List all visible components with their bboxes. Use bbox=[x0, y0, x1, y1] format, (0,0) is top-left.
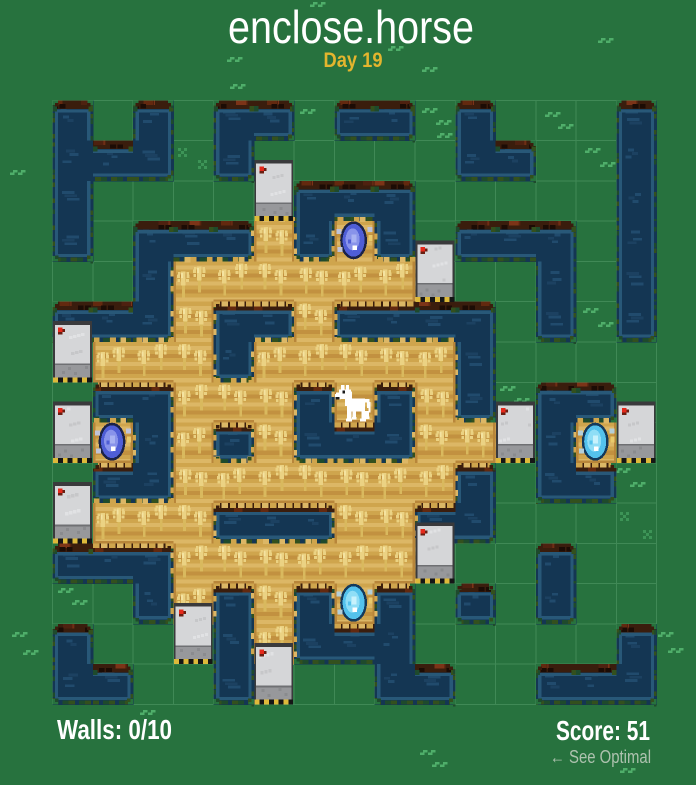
svg-text:← See Optimal: ← See Optimal bbox=[550, 747, 651, 767]
svg-text:enclose.horse: enclose.horse bbox=[228, 1, 474, 53]
svg-text:Day 19: Day 19 bbox=[324, 49, 383, 72]
svg-text:Walls: 0/10: Walls: 0/10 bbox=[57, 714, 172, 745]
svg-text:Score: 51: Score: 51 bbox=[556, 715, 650, 746]
